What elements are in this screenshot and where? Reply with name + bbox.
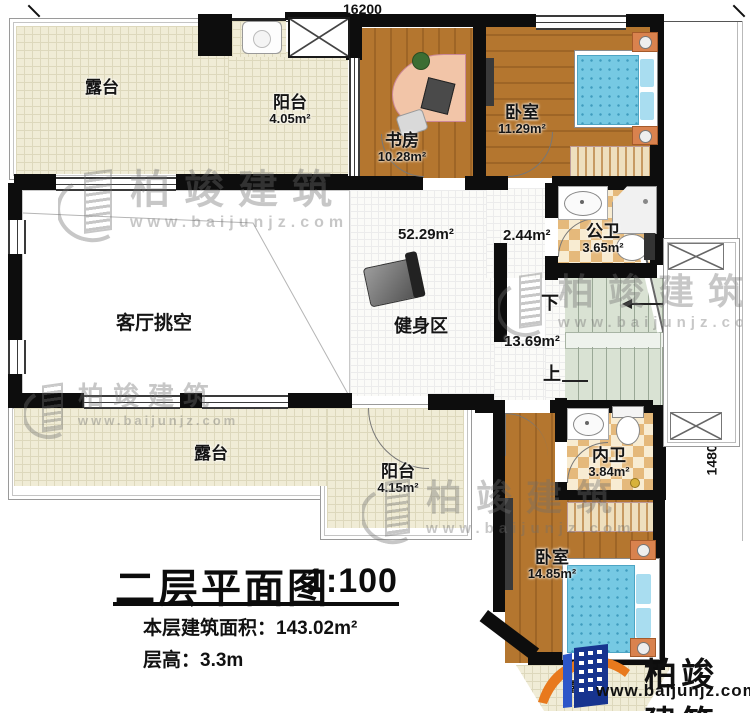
floor-plan-page: 16200 14800	[0, 0, 750, 713]
tv-panel	[486, 58, 494, 106]
plan-scale: 1:100	[306, 562, 398, 601]
window	[536, 15, 626, 30]
wall	[176, 174, 228, 190]
brand-logo-icon	[532, 642, 638, 712]
wall	[345, 176, 423, 190]
stairs-down-label: 下	[541, 293, 559, 313]
wall	[198, 14, 232, 56]
wall	[288, 393, 352, 408]
wall	[14, 174, 56, 190]
terrace-top-floor	[16, 26, 228, 174]
wall	[493, 400, 505, 612]
floor-height-label: 层高：	[143, 650, 200, 671]
pillow	[639, 58, 655, 88]
wall	[555, 398, 567, 442]
pillow	[635, 607, 652, 639]
water-heater	[242, 21, 282, 54]
toilet	[616, 416, 640, 445]
window	[56, 177, 176, 191]
roof-outline-line	[737, 22, 738, 240]
stairs-up-line	[562, 380, 588, 382]
stairs-up-label: 上	[543, 364, 561, 384]
area-label-hall: 2.44m²	[503, 228, 551, 245]
nightstand	[630, 540, 656, 560]
window	[8, 220, 26, 254]
window	[8, 340, 26, 374]
room-label-bedroom1: 卧室11.29m²	[482, 103, 562, 137]
dimension-tick	[28, 5, 41, 18]
stairs-lower-flight	[565, 347, 665, 405]
bed	[574, 50, 658, 128]
wall	[494, 243, 507, 342]
title-underline	[113, 602, 399, 606]
room-label-balcony-bottom: 阳台4.15m²	[356, 462, 440, 496]
dimension-line-right	[742, 21, 743, 541]
room-label-balcony-top: 阳台4.05m²	[248, 93, 332, 127]
brand-url: www.baijunjz.com	[596, 681, 750, 701]
wall	[180, 393, 202, 408]
wall	[8, 254, 22, 340]
wall	[545, 263, 657, 278]
room-label-study: 书房10.28m²	[360, 131, 444, 165]
pillow	[635, 573, 652, 605]
pillow	[639, 91, 655, 121]
floor-area-value: 143.02m²	[276, 618, 357, 639]
nightstand	[632, 126, 658, 145]
dimension-tick	[733, 5, 746, 18]
room-label-private-bath: 内卫3.84m²	[572, 446, 646, 480]
floor-area-line: 本层建筑面积：143.02m²	[143, 613, 357, 640]
area-label-gym: 52.29m²	[398, 227, 454, 244]
room-label-terrace-bottom: 露台	[194, 444, 228, 463]
wall	[362, 14, 536, 27]
window-slider	[349, 58, 360, 176]
floor-area-label: 本层建筑面积：	[143, 618, 276, 639]
wall	[473, 14, 486, 188]
living-void-area	[22, 190, 350, 397]
wardrobe	[567, 502, 655, 532]
floor-height-line: 层高：3.3m	[143, 645, 243, 672]
room-label-living-void: 客厅挑空	[116, 313, 192, 334]
wall	[8, 393, 84, 408]
sink-counter	[558, 186, 608, 220]
window	[84, 395, 180, 409]
terrace-bottom-floor	[14, 408, 327, 486]
shaft-x-window	[288, 17, 350, 58]
wall	[475, 400, 505, 413]
wall	[545, 183, 558, 218]
wall	[555, 490, 653, 500]
window	[202, 395, 288, 409]
wall	[465, 176, 508, 190]
sink-counter	[567, 408, 609, 440]
stairs-down-arrow	[622, 299, 632, 309]
room-label-gym: 健身区	[394, 316, 448, 336]
shaft-x-window	[668, 243, 724, 270]
nightstand	[632, 32, 658, 52]
room-label-public-bath: 公卫3.65m²	[566, 222, 640, 256]
wardrobe	[570, 146, 652, 178]
plant	[412, 52, 430, 70]
shaft-x-window	[670, 412, 722, 440]
floor-height-value: 3.3m	[200, 650, 243, 671]
room-label-bedroom2: 卧室14.85m²	[510, 548, 594, 582]
toilet-tank	[644, 233, 655, 260]
wall	[228, 174, 348, 190]
area-label-stair-hall: 13.69m²	[504, 334, 560, 351]
room-label-terrace-top: 露台	[85, 78, 119, 97]
